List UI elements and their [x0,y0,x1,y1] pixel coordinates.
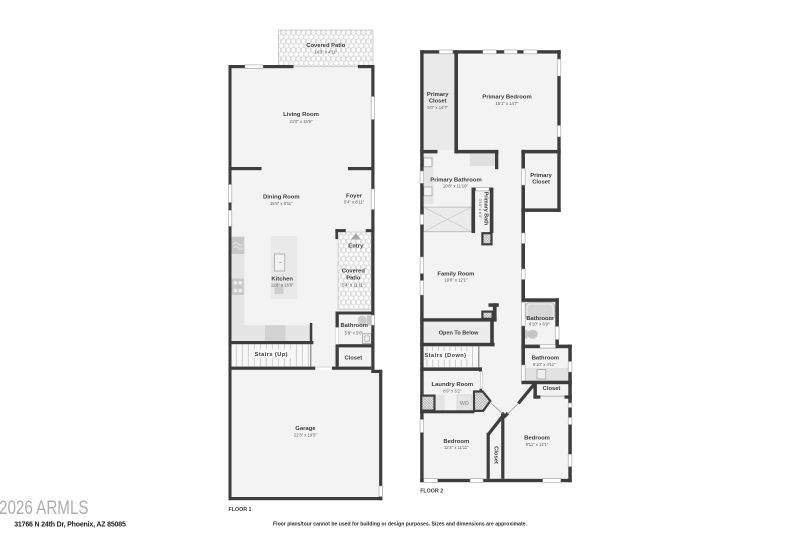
svg-text:31766 N 24th Dr, Phoenix, AZ 8: 31766 N 24th Dr, Phoenix, AZ 85085 [14,521,126,528]
svg-text:Open To Below: Open To Below [439,330,479,336]
svg-text:15'1" x 14'7": 15'1" x 14'7" [496,101,519,106]
svg-text:Patio: Patio [346,275,361,281]
svg-text:Closet: Closet [344,356,362,362]
svg-text:Bathroom: Bathroom [341,323,368,329]
svg-text:Covered Patio: Covered Patio [306,43,345,49]
svg-text:21'0" x 15'9": 21'0" x 15'9" [290,119,313,124]
svg-text:5'4" x 11'11": 5'4" x 11'11" [342,282,365,287]
svg-text:22'3" x 19'5": 22'3" x 19'5" [294,432,317,437]
svg-text:Primary Bedroom: Primary Bedroom [482,94,531,100]
svg-text:Primary: Primary [427,92,449,98]
svg-text:5'0" x 14'7": 5'0" x 14'7" [427,105,448,110]
svg-text:9'11" x 12'1": 9'11" x 12'1" [526,442,549,447]
svg-text:WD: WD [460,401,469,407]
svg-text:Primary Bathroom: Primary Bathroom [430,177,481,183]
svg-text:Foyer: Foyer [346,194,363,200]
svg-text:Stairs (Down): Stairs (Down) [425,353,467,359]
svg-text:10'8" x 11'10": 10'8" x 11'10" [443,183,468,188]
svg-text:Bedroom: Bedroom [524,436,550,442]
svg-text:Covered: Covered [342,269,366,275]
svg-text:Entry: Entry [348,243,364,249]
svg-text:5'8" x 5'0": 5'8" x 5'0" [345,331,364,336]
svg-text:Closet: Closet [543,386,561,392]
svg-text:FLOOR 1: FLOOR 1 [229,507,252,513]
svg-text:6'10" x 4'11": 6'10" x 4'11" [533,362,556,367]
svg-text:Family Room: Family Room [437,272,474,278]
svg-text:Closet: Closet [532,180,550,186]
svg-text:4'10" x 6'9": 4'10" x 6'9" [529,321,550,326]
svg-text:15'8" x 8'11": 15'8" x 8'11" [270,201,293,206]
svg-text:14'3" x 4'11": 14'3" x 4'11" [314,50,337,55]
svg-text:Bathroom: Bathroom [532,356,559,362]
svg-text:Closet: Closet [492,446,498,464]
svg-text:3'10" x 6'3": 3'10" x 6'3" [478,199,483,219]
svg-text:Garage: Garage [295,426,316,432]
svg-text:Living Room: Living Room [283,112,319,118]
svg-text:Floor plans/tour cannot be use: Floor plans/tour cannot be used for buil… [273,522,527,528]
svg-text:19'8" x 12'1": 19'8" x 12'1" [444,278,467,283]
svg-text:FLOOR 2: FLOOR 2 [420,488,443,494]
svg-text:Laundry Room: Laundry Room [432,382,474,388]
svg-text:Dining Room: Dining Room [263,195,300,201]
svg-text:Primary: Primary [530,173,552,179]
svg-text:5'4" x 8'11": 5'4" x 8'11" [344,200,365,205]
svg-text:2026 ARMLS: 2026 ARMLS [0,496,89,518]
svg-text:Stairs (Up): Stairs (Up) [255,352,288,358]
svg-text:12'4" x 11'11": 12'4" x 11'11" [444,445,469,450]
svg-text:11'8" x 16'6": 11'8" x 16'6" [271,282,294,287]
svg-text:Closet: Closet [429,98,447,104]
svg-text:Bedroom: Bedroom [443,439,469,445]
svg-text:8'9" x 6'2": 8'9" x 6'2" [443,388,462,393]
